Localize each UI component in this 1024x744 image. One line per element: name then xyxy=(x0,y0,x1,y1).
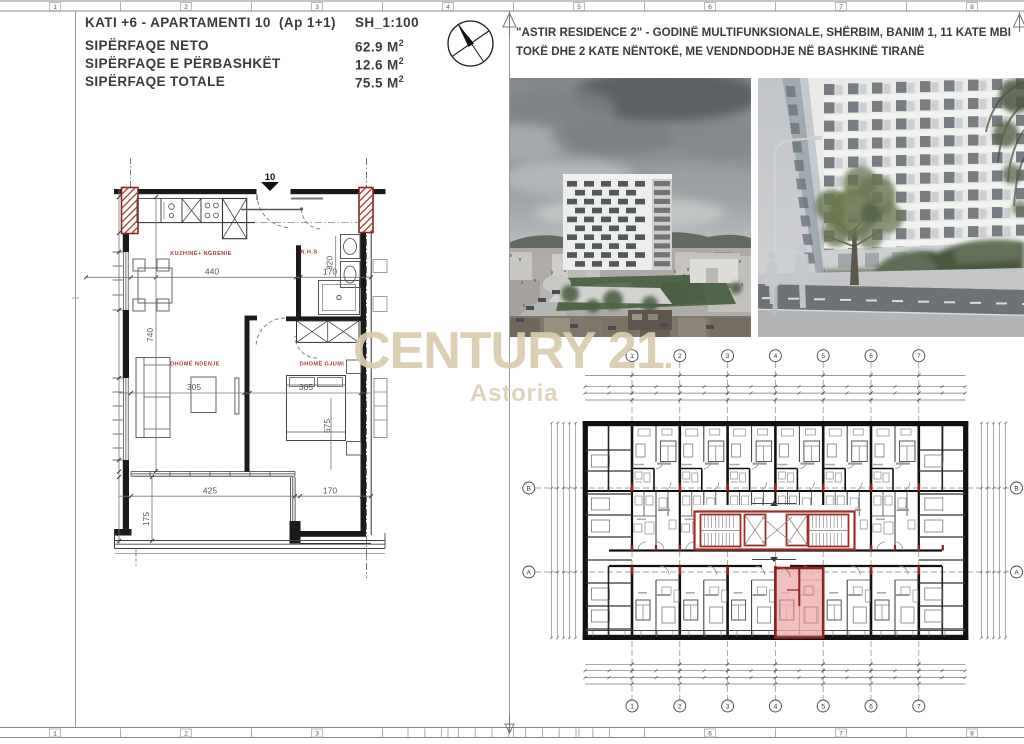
svg-text:8: 8 xyxy=(970,4,974,11)
svg-text:6: 6 xyxy=(708,4,712,11)
svg-text:A: A xyxy=(527,569,532,576)
svg-text:A: A xyxy=(1014,569,1019,576)
svg-text:7: 7 xyxy=(839,731,843,738)
svg-text:7: 7 xyxy=(917,703,921,710)
svg-text:5: 5 xyxy=(821,703,825,710)
svg-text:8: 8 xyxy=(970,731,974,738)
svg-text:B: B xyxy=(1014,485,1018,492)
svg-text:320: 320 xyxy=(325,256,335,270)
svg-text:DHOMË NDENJE: DHOMË NDENJE xyxy=(170,361,220,368)
svg-text:175: 175 xyxy=(141,512,151,526)
svg-text:5: 5 xyxy=(821,353,825,360)
svg-text:425: 425 xyxy=(203,485,217,495)
svg-text:5: 5 xyxy=(577,4,581,11)
svg-text:305: 305 xyxy=(187,382,201,392)
svg-text:1: 1 xyxy=(53,4,57,11)
svg-text:170: 170 xyxy=(323,485,337,495)
svg-text:KUZHINË+ NGRENIE: KUZHINË+ NGRENIE xyxy=(170,250,232,257)
svg-text:3: 3 xyxy=(726,353,730,360)
svg-text:B: B xyxy=(527,485,531,492)
svg-text:2: 2 xyxy=(678,703,682,710)
svg-text:6: 6 xyxy=(869,703,873,710)
svg-text:2: 2 xyxy=(184,731,188,738)
svg-text:7: 7 xyxy=(917,353,921,360)
svg-text:3: 3 xyxy=(315,731,319,738)
svg-text:6: 6 xyxy=(708,731,712,738)
svg-text:2: 2 xyxy=(184,4,188,11)
svg-text:305: 305 xyxy=(299,382,313,392)
svg-text:3: 3 xyxy=(726,703,730,710)
svg-text:4: 4 xyxy=(774,353,778,360)
svg-text:1: 1 xyxy=(53,731,57,738)
svg-text:1: 1 xyxy=(630,703,634,710)
svg-text:7: 7 xyxy=(839,4,843,11)
svg-text:575: 575 xyxy=(322,419,332,433)
svg-text:740: 740 xyxy=(145,328,155,342)
svg-text:2: 2 xyxy=(678,353,682,360)
svg-text:10: 10 xyxy=(265,172,276,183)
svg-text:440: 440 xyxy=(205,267,219,277)
svg-text:4: 4 xyxy=(446,4,450,11)
svg-text:6: 6 xyxy=(869,353,873,360)
svg-text:3: 3 xyxy=(315,4,319,11)
svg-text:4: 4 xyxy=(774,703,778,710)
svg-text:DHOMË GJUMI: DHOMË GJUMI xyxy=(300,361,345,368)
svg-text:N.H.S: N.H.S xyxy=(301,250,318,256)
